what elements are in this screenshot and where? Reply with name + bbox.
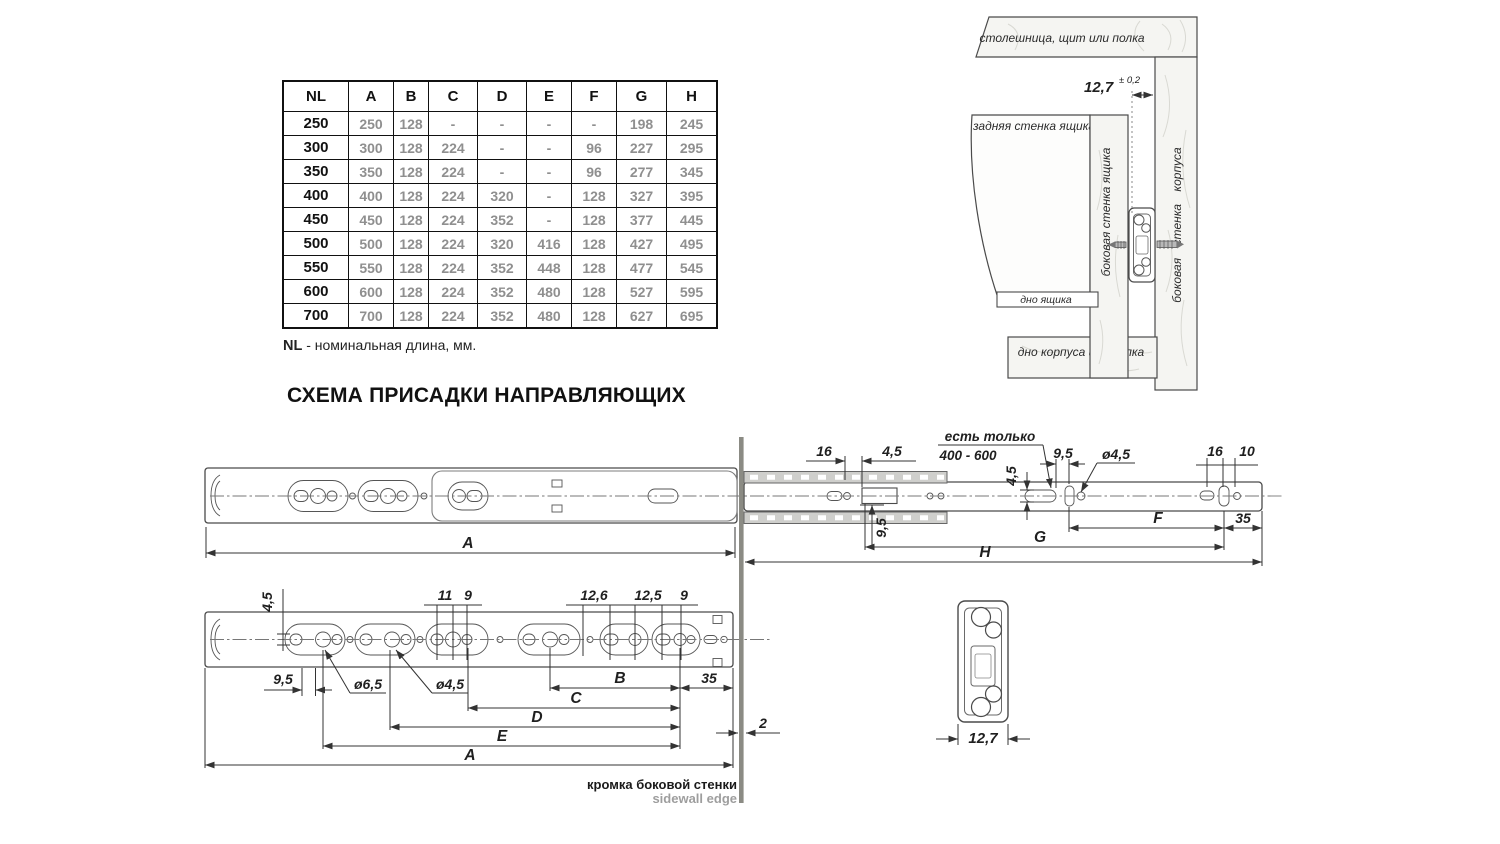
dia-65: ø6,5 bbox=[354, 676, 382, 692]
installation-diagram: столешница, щит или полка боковая стенка… bbox=[971, 17, 1197, 390]
dim-H: H bbox=[979, 544, 991, 561]
top-panel-label: столешница, щит или полка bbox=[979, 31, 1144, 45]
dia-45-top: ø4,5 bbox=[1102, 446, 1130, 462]
dim-F: F bbox=[1153, 510, 1163, 527]
dim-95-vert: 9,5 bbox=[873, 518, 889, 538]
note-line1: есть только bbox=[945, 429, 1036, 444]
mounted-slide-profile bbox=[1129, 208, 1155, 282]
dim-16-right: 16 bbox=[1207, 443, 1223, 459]
cross-section-width: 12,7 bbox=[968, 730, 998, 747]
dim-45-vert: 4,5 bbox=[259, 592, 275, 613]
dim-11: 11 bbox=[438, 587, 453, 603]
dim-E: E bbox=[497, 728, 508, 745]
dim-9b: 9 bbox=[680, 587, 688, 603]
dim-C: C bbox=[570, 690, 582, 707]
dim-G: G bbox=[1034, 529, 1046, 546]
cabinet-side-label: боковая стенка корпуса bbox=[1170, 147, 1184, 303]
dim-B: B bbox=[614, 670, 625, 687]
dim-10: 10 bbox=[1239, 443, 1255, 459]
note-line2: 400 - 600 bbox=[938, 448, 997, 463]
dim-16-left: 16 bbox=[816, 443, 832, 459]
sidewall-edge-label-ru: кромка боковой стенки bbox=[587, 777, 737, 792]
dim-D: D bbox=[531, 709, 542, 726]
dim-35-top: 35 bbox=[1235, 510, 1251, 526]
dim-2: 2 bbox=[758, 715, 767, 731]
drawer-side-label: боковая стенка ящика bbox=[1099, 147, 1113, 276]
dim-95-slot: 9,5 bbox=[1053, 445, 1073, 461]
dim-125: 12,5 bbox=[634, 587, 661, 603]
dim-45-slot: 4,5 bbox=[1003, 466, 1019, 487]
drawer-back-label: задняя стенка ящика bbox=[972, 119, 1095, 133]
sidewall-edge-line bbox=[739, 437, 744, 803]
slide-front-view: 4,5 11 9 12,6 12,5 9 9, bbox=[205, 587, 780, 806]
drawer-bottom-label: дно ящика bbox=[1020, 294, 1072, 306]
dim-35-front: 35 bbox=[701, 670, 717, 686]
dim-A-top: A bbox=[461, 535, 473, 552]
gap-tol-label: ± 0,2 bbox=[1119, 75, 1141, 86]
dia-45-front: ø4,5 bbox=[436, 676, 464, 692]
dim-126: 12,6 bbox=[580, 587, 607, 603]
dim-A-front: A bbox=[463, 747, 475, 764]
slide-cross-section: 12,7 bbox=[936, 601, 1030, 747]
dim-95-front: 9,5 bbox=[273, 671, 293, 687]
slide-top-view: 16 4,5 9,5 есть только 400 - 600 4,5 9,5 bbox=[205, 429, 1283, 566]
gap-dim-label: 12,7 bbox=[1084, 79, 1114, 96]
technical-drawing: столешница, щит или полка боковая стенка… bbox=[0, 0, 1500, 844]
dim-45-left: 4,5 bbox=[881, 443, 902, 459]
drawer-slide-spec-sheet: NLABCDEFGH 250250128----1982453003001282… bbox=[0, 0, 1500, 844]
sidewall-edge-label-en: sidewall edge bbox=[652, 791, 737, 806]
drawer-back-panel bbox=[971, 115, 1090, 298]
dim-9a: 9 bbox=[464, 587, 472, 603]
